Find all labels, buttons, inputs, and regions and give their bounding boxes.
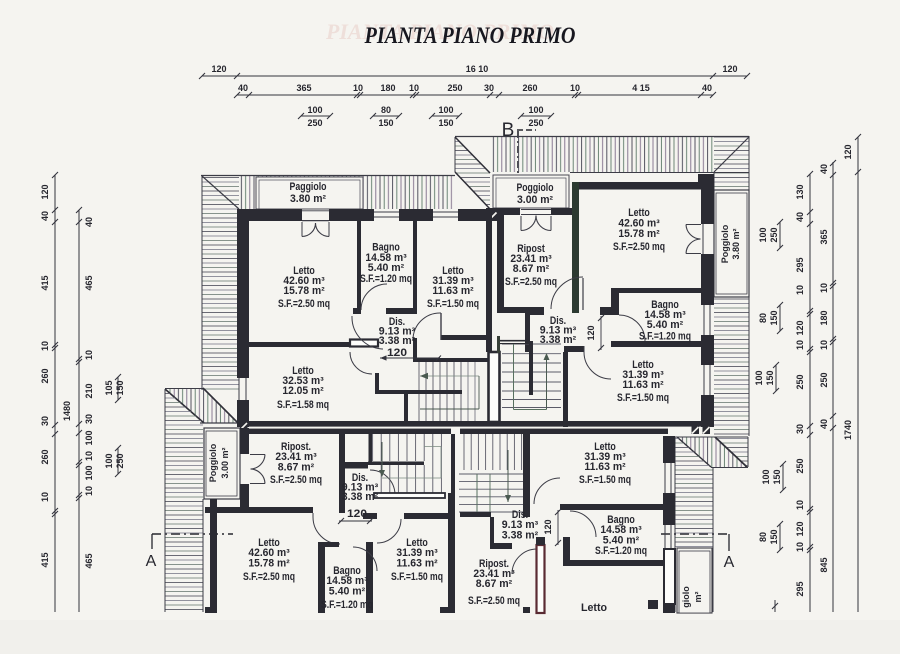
svg-text:130: 130 — [795, 184, 805, 199]
svg-text:S.F.=2.50 mq: S.F.=2.50 mq — [468, 595, 520, 607]
svg-text:105: 105 — [104, 380, 114, 395]
svg-text:11.63 m²: 11.63 m² — [622, 379, 664, 391]
svg-text:120: 120 — [722, 64, 737, 74]
svg-text:120: 120 — [543, 519, 553, 534]
svg-text:Poggiolo: Poggiolo — [517, 182, 554, 194]
svg-text:250: 250 — [528, 118, 543, 128]
svg-text:10: 10 — [353, 83, 363, 93]
svg-text:250: 250 — [795, 458, 805, 473]
svg-text:S.F.=1.50 mq: S.F.=1.50 mq — [391, 571, 443, 583]
svg-text:3.00 m²: 3.00 m² — [517, 194, 553, 206]
svg-text:100: 100 — [758, 227, 768, 242]
svg-text:S.F.=2.50 mq: S.F.=2.50 mq — [243, 571, 295, 583]
svg-text:100: 100 — [84, 430, 94, 445]
svg-text:10: 10 — [795, 542, 805, 552]
svg-text:3.80 m²: 3.80 m² — [290, 193, 326, 205]
svg-text:150: 150 — [765, 370, 775, 385]
svg-text:150: 150 — [772, 469, 782, 484]
svg-text:120: 120 — [795, 521, 805, 536]
svg-text:295: 295 — [795, 257, 805, 272]
svg-text:S.F.=1.58 mq: S.F.=1.58 mq — [277, 399, 329, 411]
svg-text:15.78 m²: 15.78 m² — [248, 558, 290, 570]
svg-text:30: 30 — [84, 414, 94, 424]
svg-text:100: 100 — [84, 465, 94, 480]
svg-text:10: 10 — [40, 492, 50, 502]
svg-text:845: 845 — [819, 557, 829, 572]
svg-text:30: 30 — [795, 424, 805, 434]
svg-text:S.F.=1.20 mq: S.F.=1.20 mq — [595, 545, 647, 557]
svg-text:150: 150 — [438, 118, 453, 128]
svg-text:40: 40 — [84, 217, 94, 227]
svg-text:10: 10 — [795, 500, 805, 510]
svg-text:465: 465 — [84, 275, 94, 290]
svg-text:PIANTA PIANO PRIMO: PIANTA PIANO PRIMO — [364, 23, 576, 48]
svg-text:120: 120 — [795, 320, 805, 335]
svg-text:120: 120 — [387, 347, 407, 359]
svg-text:260: 260 — [40, 449, 50, 464]
svg-text:415: 415 — [40, 275, 50, 290]
svg-text:40: 40 — [795, 212, 805, 222]
svg-text:10: 10 — [40, 341, 50, 351]
svg-text:12.05 m²: 12.05 m² — [282, 385, 324, 397]
svg-text:S.F.=1.50 mq: S.F.=1.50 mq — [579, 474, 631, 486]
svg-text:250: 250 — [819, 372, 829, 387]
svg-text:8.67 m²: 8.67 m² — [476, 578, 513, 590]
svg-text:10: 10 — [819, 283, 829, 293]
svg-text:260: 260 — [522, 83, 537, 93]
svg-text:100: 100 — [754, 370, 764, 385]
svg-text:80: 80 — [381, 105, 391, 115]
svg-text:3.38 m²: 3.38 m² — [540, 334, 577, 346]
svg-text:30: 30 — [484, 83, 494, 93]
svg-text:Paggiolo: Paggiolo — [290, 181, 327, 193]
svg-text:150: 150 — [115, 380, 125, 395]
svg-text:40: 40 — [819, 164, 829, 174]
svg-text:S.F.=2.50 mq: S.F.=2.50 mq — [278, 298, 330, 310]
svg-text:3.80 m²: 3.80 m² — [731, 228, 741, 259]
svg-text:260: 260 — [40, 368, 50, 383]
svg-text:100: 100 — [438, 105, 453, 115]
svg-text:10: 10 — [795, 340, 805, 350]
svg-text:3.38 m²: 3.38 m² — [342, 491, 379, 503]
svg-text:11.63 m²: 11.63 m² — [396, 558, 438, 570]
svg-text:120: 120 — [586, 325, 596, 340]
svg-text:40: 40 — [819, 419, 829, 429]
svg-text:A: A — [146, 553, 157, 570]
svg-text:365: 365 — [819, 229, 829, 244]
svg-text:120: 120 — [347, 508, 367, 520]
svg-text:250: 250 — [769, 227, 779, 242]
svg-text:S.F.=1.20 mq: S.F.=1.20 mq — [321, 599, 373, 611]
svg-text:415: 415 — [40, 552, 50, 567]
svg-text:giolo: giolo — [681, 586, 691, 608]
svg-text:16 10: 16 10 — [466, 64, 489, 74]
svg-text:S.F.=2.50 mq: S.F.=2.50 mq — [613, 241, 665, 253]
svg-text:120: 120 — [40, 184, 50, 199]
svg-text:150: 150 — [378, 118, 393, 128]
svg-text:S.F.=2.50 mq: S.F.=2.50 mq — [505, 276, 557, 288]
svg-text:15.78 m²: 15.78 m² — [618, 228, 660, 240]
svg-text:295: 295 — [795, 581, 805, 596]
svg-text:120: 120 — [843, 144, 853, 159]
svg-text:100: 100 — [307, 105, 322, 115]
svg-text:80: 80 — [758, 313, 768, 323]
svg-text:8.67 m²: 8.67 m² — [278, 462, 315, 474]
svg-text:250: 250 — [115, 453, 125, 468]
svg-text:S.F.=1.50 mq: S.F.=1.50 mq — [427, 298, 479, 310]
svg-text:S.F.=1.20 mq: S.F.=1.20 mq — [360, 273, 412, 285]
svg-text:150: 150 — [769, 310, 779, 325]
svg-text:120: 120 — [211, 64, 226, 74]
svg-text:Letto: Letto — [581, 602, 607, 614]
svg-text:10: 10 — [409, 83, 419, 93]
svg-text:100: 100 — [104, 453, 114, 468]
svg-text:A: A — [724, 554, 735, 571]
svg-text:10: 10 — [84, 451, 94, 461]
svg-text:m²: m² — [693, 591, 703, 602]
svg-text:250: 250 — [307, 118, 322, 128]
svg-text:365: 365 — [296, 83, 311, 93]
svg-text:S.F.=2.50 mq: S.F.=2.50 mq — [270, 474, 322, 486]
svg-text:Poggiolo: Poggiolo — [208, 443, 218, 482]
svg-text:3.00 m²: 3.00 m² — [220, 447, 230, 478]
svg-text:10: 10 — [570, 83, 580, 93]
svg-text:250: 250 — [447, 83, 462, 93]
svg-text:S.F.=1.20 mq: S.F.=1.20 mq — [639, 331, 691, 343]
svg-text:10: 10 — [795, 285, 805, 295]
svg-text:5.40 m²: 5.40 m² — [647, 319, 684, 331]
svg-text:15.78 m²: 15.78 m² — [283, 285, 325, 297]
svg-text:100: 100 — [528, 105, 543, 115]
svg-text:80: 80 — [758, 532, 768, 542]
svg-text:180: 180 — [380, 83, 395, 93]
svg-text:100: 100 — [761, 469, 771, 484]
svg-text:8.67 m²: 8.67 m² — [513, 263, 550, 275]
svg-text:180: 180 — [819, 310, 829, 325]
svg-text:10: 10 — [84, 350, 94, 360]
svg-text:3.38 m²: 3.38 m² — [379, 335, 416, 347]
svg-text:4 15: 4 15 — [632, 83, 650, 93]
svg-text:210: 210 — [84, 383, 94, 398]
svg-text:Poggiolo: Poggiolo — [720, 224, 730, 263]
svg-text:5.40 m²: 5.40 m² — [329, 586, 366, 598]
svg-text:150: 150 — [769, 529, 779, 544]
svg-text:250: 250 — [795, 374, 805, 389]
svg-text:10: 10 — [84, 486, 94, 496]
svg-text:1740: 1740 — [843, 420, 853, 440]
svg-text:10: 10 — [819, 340, 829, 350]
svg-text:30: 30 — [40, 416, 50, 426]
svg-text:1480: 1480 — [62, 401, 72, 421]
svg-text:11.63 m²: 11.63 m² — [432, 285, 474, 297]
svg-text:3.38 m²: 3.38 m² — [502, 530, 539, 542]
svg-text:40: 40 — [40, 211, 50, 221]
svg-text:465: 465 — [84, 553, 94, 568]
svg-text:40: 40 — [702, 83, 712, 93]
svg-text:11.63 m²: 11.63 m² — [584, 461, 626, 473]
svg-text:40: 40 — [238, 83, 248, 93]
svg-text:S.F.=1.50 mq: S.F.=1.50 mq — [617, 392, 669, 404]
